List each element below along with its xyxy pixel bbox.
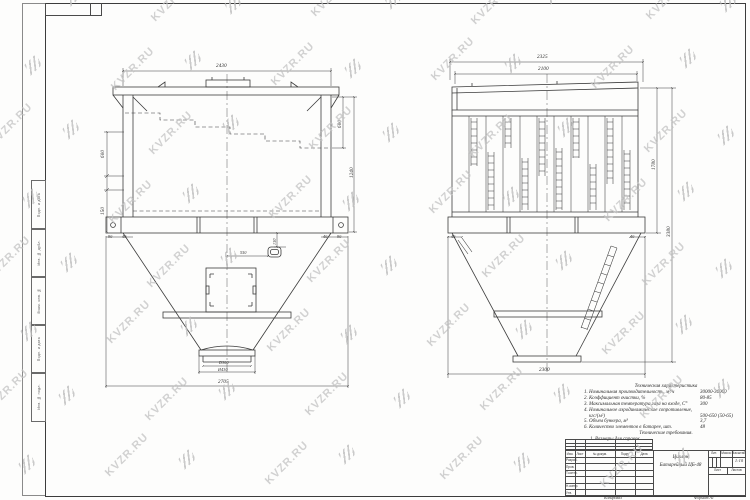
dim-side-cover-width: 2100 [538,67,549,72]
margin-cell-label: Инв. № дубл. [37,240,41,266]
dim-front-outlet-flange: Ø430 [218,367,228,372]
title-block-ext-table [565,439,653,450]
dim-front-foot-right-inner: 40 [323,234,327,239]
title-block-header-cell: № докум. [586,452,615,456]
title-block-header-cell: Подп. [616,452,635,456]
margin-cell-label: Подп. и дата [37,193,41,217]
dim-side-foot-right: 40 [630,234,634,239]
paper-edge-line-bottom [22,495,45,496]
doc-name-line2: Батарейный ЦБ-48 [654,463,707,468]
title-block-signature-label: Пров. [566,465,585,469]
dim-front-hole-offset: 130 [272,238,277,245]
margin-cell: Подп. и дата [31,180,46,230]
dim-front-left-upper: 600 [101,150,106,158]
tech-spec-value: 300 [700,402,708,408]
title-block-signature-label: Н.контр. [566,484,585,488]
margin-cell: Взам. инв. № [31,276,46,326]
dim-front-top-width: 2430 [216,64,227,69]
tech-spec-value: 48 [700,425,705,431]
dim-front-outlet-inner: D300 [219,360,229,365]
format-label: Формат А1 [694,495,714,500]
margin-cell-label: Инв. № подл. [37,384,41,410]
dim-side-body-height: 1780 [652,159,657,170]
paper-edge-line [22,3,23,496]
scale-label: Масштаб [731,451,746,455]
tech-spec-title: Техническая характеристика [584,384,748,389]
tech-spec-rows: 1. Номинальная производительность, м³/ч3… [584,390,748,431]
title-block-signature-label: Т.контр. [566,471,585,475]
dim-front-base-width: 2705 [218,380,229,385]
dim-side-total-height: 3380 [667,226,672,237]
dim-front-right-total: 1240 [350,167,355,178]
dim-side-foot-left: 40 [451,234,455,239]
dim-front-right-upper: 600 [338,120,343,128]
doc-name-line1: Циклон [654,455,707,460]
title-block: Изм.Лист№ докум.Подп.ДатаРазраб.Пров.Т.к… [565,439,746,496]
margin-cell-label: Подп. и дата [37,337,41,361]
title-block-header-cell: Дата [636,452,653,456]
copied-label: Копировал [604,495,622,500]
margin-cell-label: Взам. инв. № [37,288,41,314]
dim-front-left-lower: 150 [101,207,106,215]
margin-cell: Подп. и дата [31,324,46,374]
dim-front-door-offset: 550 [240,250,247,255]
paper-edge-line-top [22,3,45,4]
sheet-label: Лист [709,468,726,472]
margin-cell: Инв. № подл. [31,372,46,422]
title-block-header-cell: Изм. [566,452,575,456]
dim-side-top-width: 2325 [537,55,548,60]
tech-requirements-title: Технические требования. [584,431,748,436]
dim-front-foot-left-inner: 40 [122,234,126,239]
margin-cell: Инв. № дубл. [31,228,46,278]
title-block-signature-label: Утв. [566,491,585,495]
dim-front-foot-right-outer: 90 [337,234,341,239]
sheets-label: Листов [727,468,746,472]
tech-spec-block: Техническая характеристика 1. Номинальна… [584,384,748,443]
blueprint-sheet: Подп. и датаИнв. № дубл.Взам. инв. №Подп… [0,0,750,500]
scale-value: 1:10 [732,458,746,463]
dim-side-base-width: 2300 [539,368,550,373]
title-block-signature-label: Разраб. [566,458,585,462]
dim-front-foot-left-outer: 90 [108,234,112,239]
corner-stamp [45,3,102,16]
title-block-header-cell: Лист [576,452,585,456]
lit-label: Лит. [708,451,720,455]
